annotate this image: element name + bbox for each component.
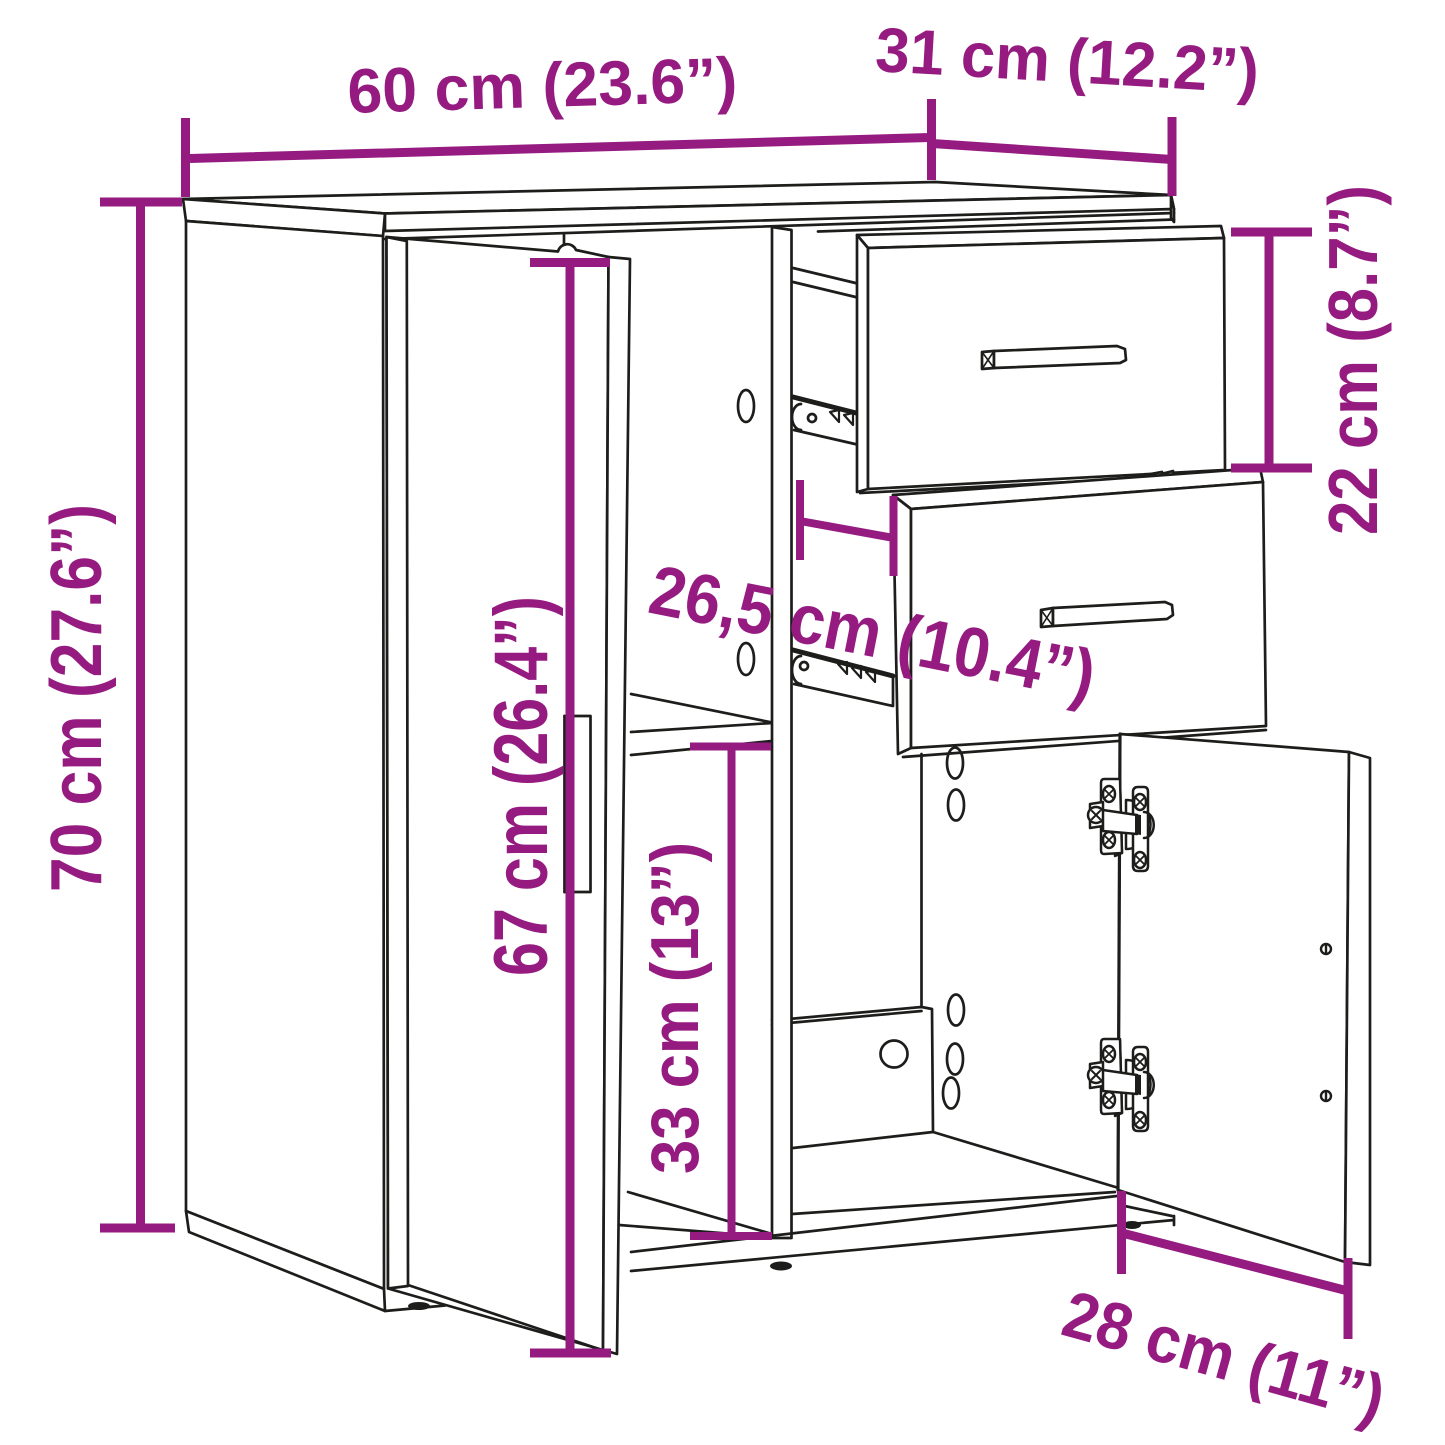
svg-text:60 cm (23.6”): 60 cm (23.6”) [346,45,738,127]
svg-text:70 cm (27.6”): 70 cm (27.6”) [37,504,117,892]
svg-text:31 cm (12.2”): 31 cm (12.2”) [874,15,1261,107]
svg-text:33 cm (13”): 33 cm (13”) [637,842,713,1174]
svg-text:22 cm (8.7”): 22 cm (8.7”) [1314,185,1392,535]
svg-text:67 cm (26.4”): 67 cm (26.4”) [479,596,564,976]
svg-text:28 cm (11”): 28 cm (11”) [1055,1276,1393,1435]
